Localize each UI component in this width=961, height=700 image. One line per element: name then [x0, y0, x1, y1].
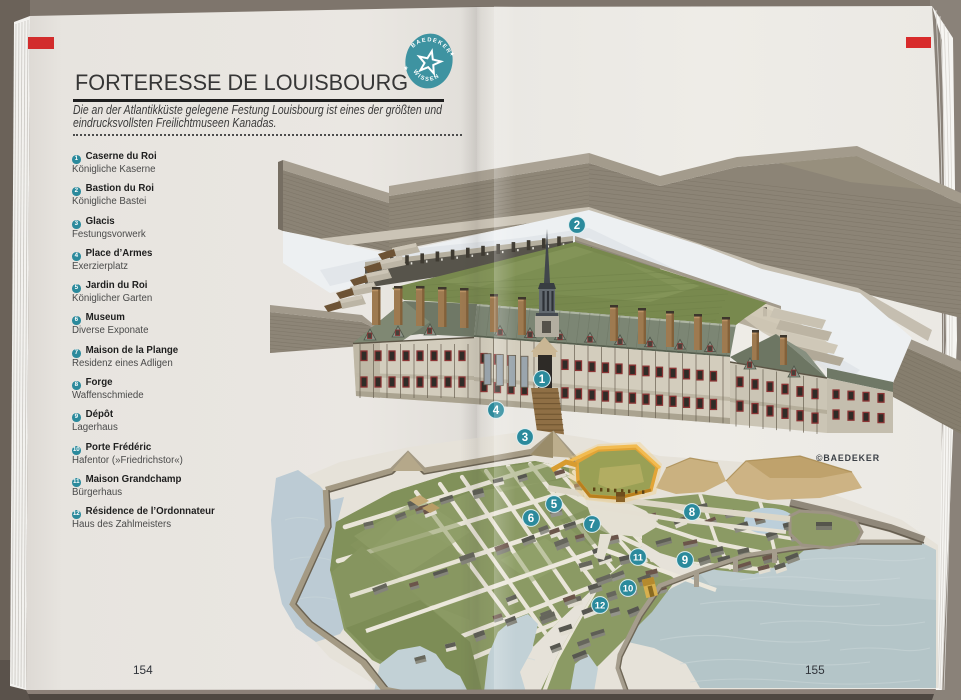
svg-text:7: 7: [589, 519, 595, 531]
svg-text:2: 2: [574, 220, 580, 232]
svg-text:8: 8: [689, 507, 696, 519]
svg-text:10: 10: [623, 583, 634, 594]
svg-text:6: 6: [528, 513, 534, 525]
svg-text:9: 9: [682, 555, 688, 567]
svg-text:3: 3: [522, 432, 528, 444]
svg-text:5: 5: [551, 499, 558, 511]
svg-text:11: 11: [633, 552, 644, 563]
svg-text:1: 1: [539, 374, 546, 386]
svg-text:12: 12: [595, 600, 606, 611]
